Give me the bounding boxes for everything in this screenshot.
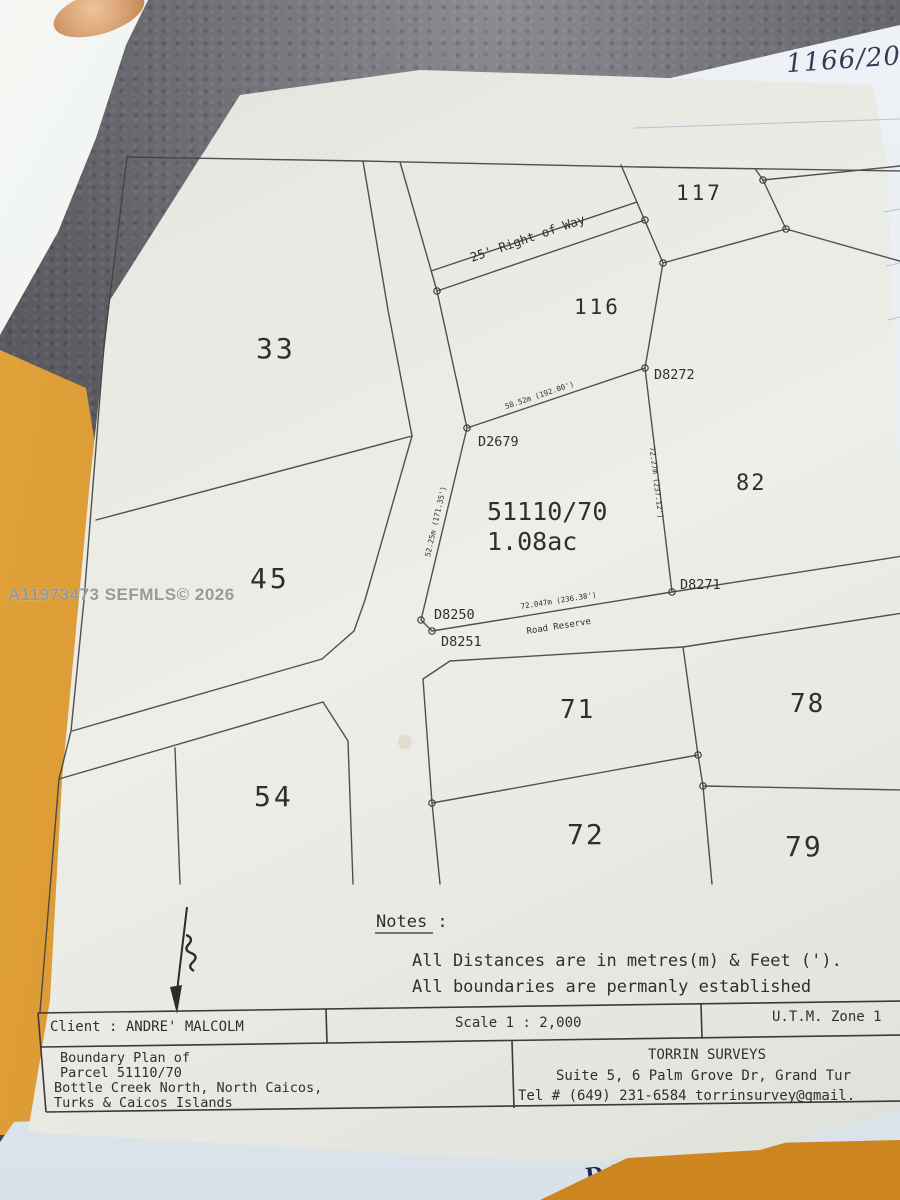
dim-south-boundary: 72.047m (236.38') (520, 590, 597, 611)
right-of-way-label: 25' Right of Way (468, 211, 587, 265)
title-line2: Parcel 51110/70 (60, 1065, 182, 1081)
subject-parcel-area: 1.08ac (487, 527, 577, 556)
parcel-116-label: 116 (574, 295, 621, 319)
point-d2679-label: D2679 (478, 434, 519, 450)
mls-watermark: A11973473 SEFMLS© 2026 (8, 585, 235, 605)
parcel-117-label: 117 (676, 181, 723, 205)
notes-line2: All boundaries are permanly established (412, 977, 811, 997)
survey-point-markers (418, 177, 789, 806)
point-d8251-label: D8251 (441, 634, 482, 650)
parcel-79-label: 79 (785, 830, 823, 863)
parcel-54-label: 54 (254, 780, 294, 813)
paper-stain (398, 735, 412, 749)
notes-title: Notes : (376, 912, 448, 932)
title-line4: Turks & Caicos Islands (54, 1095, 233, 1111)
client-field: Client : ANDRE' MALCOLM (50, 1019, 244, 1035)
parcel-33-label: 33 (256, 332, 296, 365)
photo-of-survey-plan: 1166/2022 DATE: (0, 0, 900, 1200)
surveyor-name: TORRIN SURVEYS (648, 1047, 766, 1063)
title-line3: Bottle Creek North, North Caicos, (54, 1080, 322, 1096)
surveyor-address: Suite 5, 6 Palm Grove Dr, Grand Tur (556, 1068, 851, 1084)
title-line1: Boundary Plan of (60, 1050, 190, 1066)
point-d8272-label: D8272 (654, 367, 695, 383)
road-reserve-label: Road Reserve (526, 617, 592, 637)
utm-zone-field: U.T.M. Zone 1 (772, 1009, 882, 1025)
parcel-45-label: 45 (250, 562, 290, 595)
scale-field: Scale 1 : 2,000 (455, 1015, 581, 1031)
notes-line1: All Distances are in metres(m) & Feet ('… (412, 951, 842, 971)
parcel-82-label: 82 (736, 471, 767, 496)
parcel-78-label: 78 (790, 689, 825, 719)
north-arrow (170, 907, 196, 1014)
dim-east-boundary: 72.27m (237.12') (648, 446, 666, 519)
subject-parcel-id: 51110/70 (487, 497, 607, 526)
point-d8250-label: D8250 (434, 607, 475, 623)
point-d8271-label: D8271 (680, 577, 721, 593)
parcel-71-label: 71 (560, 695, 595, 725)
ruled-lines (634, 119, 900, 320)
surveyor-contact: Tel # (649) 231-6584 torrinsurvey@gmail. (518, 1088, 855, 1104)
map-frame-top (127, 157, 900, 171)
parcel-72-label: 72 (567, 818, 605, 851)
